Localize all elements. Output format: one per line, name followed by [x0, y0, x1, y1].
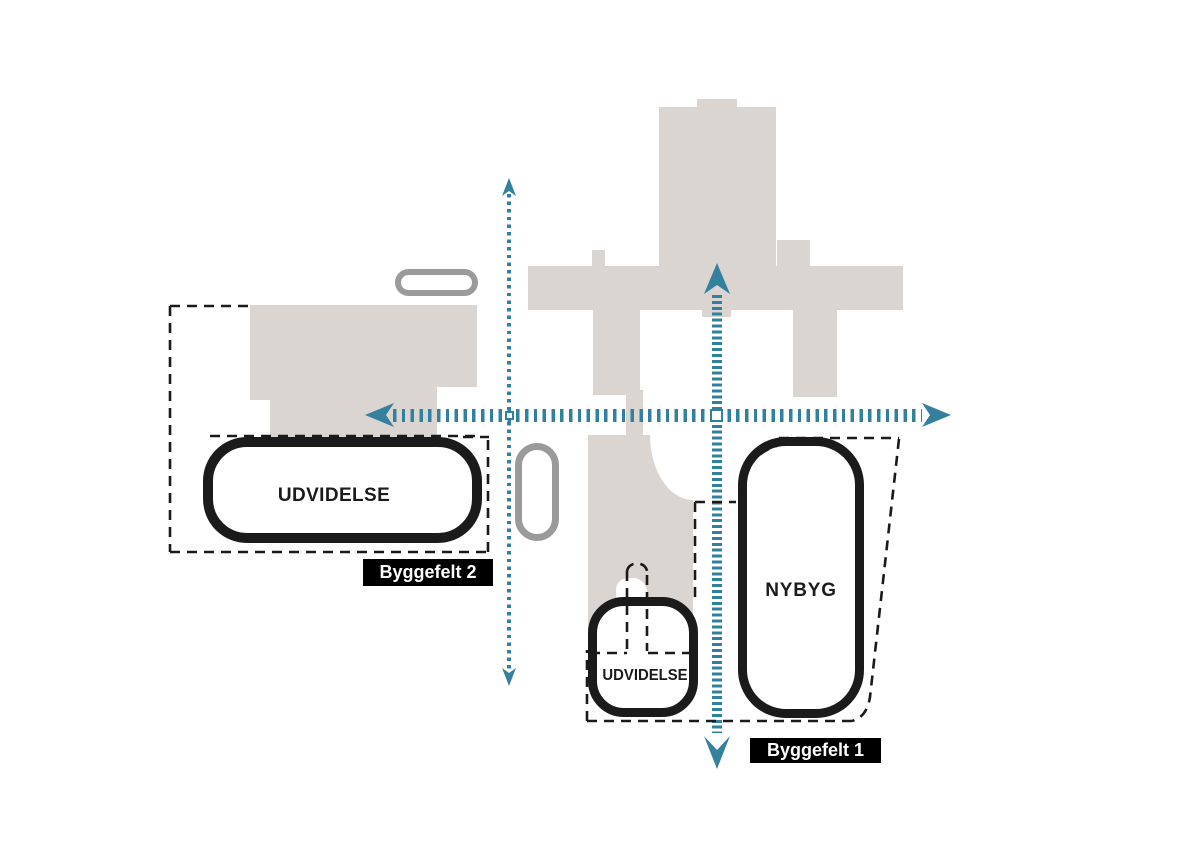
- existing-building-east-leg: [793, 305, 837, 397]
- byggefelt-1-tag: Byggefelt 1: [750, 738, 881, 763]
- arrowhead-east-axis-down: [704, 736, 730, 769]
- existing-building-west-mid: [250, 387, 437, 400]
- arrowhead-west-axis-down: [502, 668, 516, 686]
- existing-building-wing-bump: [592, 250, 605, 268]
- existing-building-west-leg: [593, 305, 640, 395]
- existing-building-west-main: [250, 305, 477, 387]
- expansion-1-label: UDVIDELSE: [602, 667, 687, 685]
- axis-crossing-marker-east: [710, 409, 723, 422]
- site-plan-canvas: UDVIDELSE UDVIDELSE NYBYG Byggefelt 2 By…: [0, 0, 1200, 849]
- axis-horizontal-dotted-line: [393, 409, 922, 422]
- capsule-outline-north: [395, 269, 478, 296]
- arrowhead-horizontal-right: [922, 403, 951, 427]
- newbuild-label: NYBYG: [765, 580, 837, 602]
- expansion-2-label: UDVIDELSE: [278, 485, 390, 507]
- existing-building-tower: [659, 107, 776, 270]
- newbuild-building-outline: [738, 437, 864, 718]
- boundaries-and-arrows-overlay: [0, 0, 1200, 849]
- axis-crossing-marker-west: [505, 411, 514, 420]
- capsule-outline-mid: [515, 443, 559, 541]
- axis-vertical-west-dotted-line: [507, 194, 510, 670]
- axis-vertical-east-dotted-line: [712, 295, 722, 733]
- byggefelt-2-tag: Byggefelt 2: [363, 559, 493, 586]
- expansion-1-building-outline: [588, 597, 698, 717]
